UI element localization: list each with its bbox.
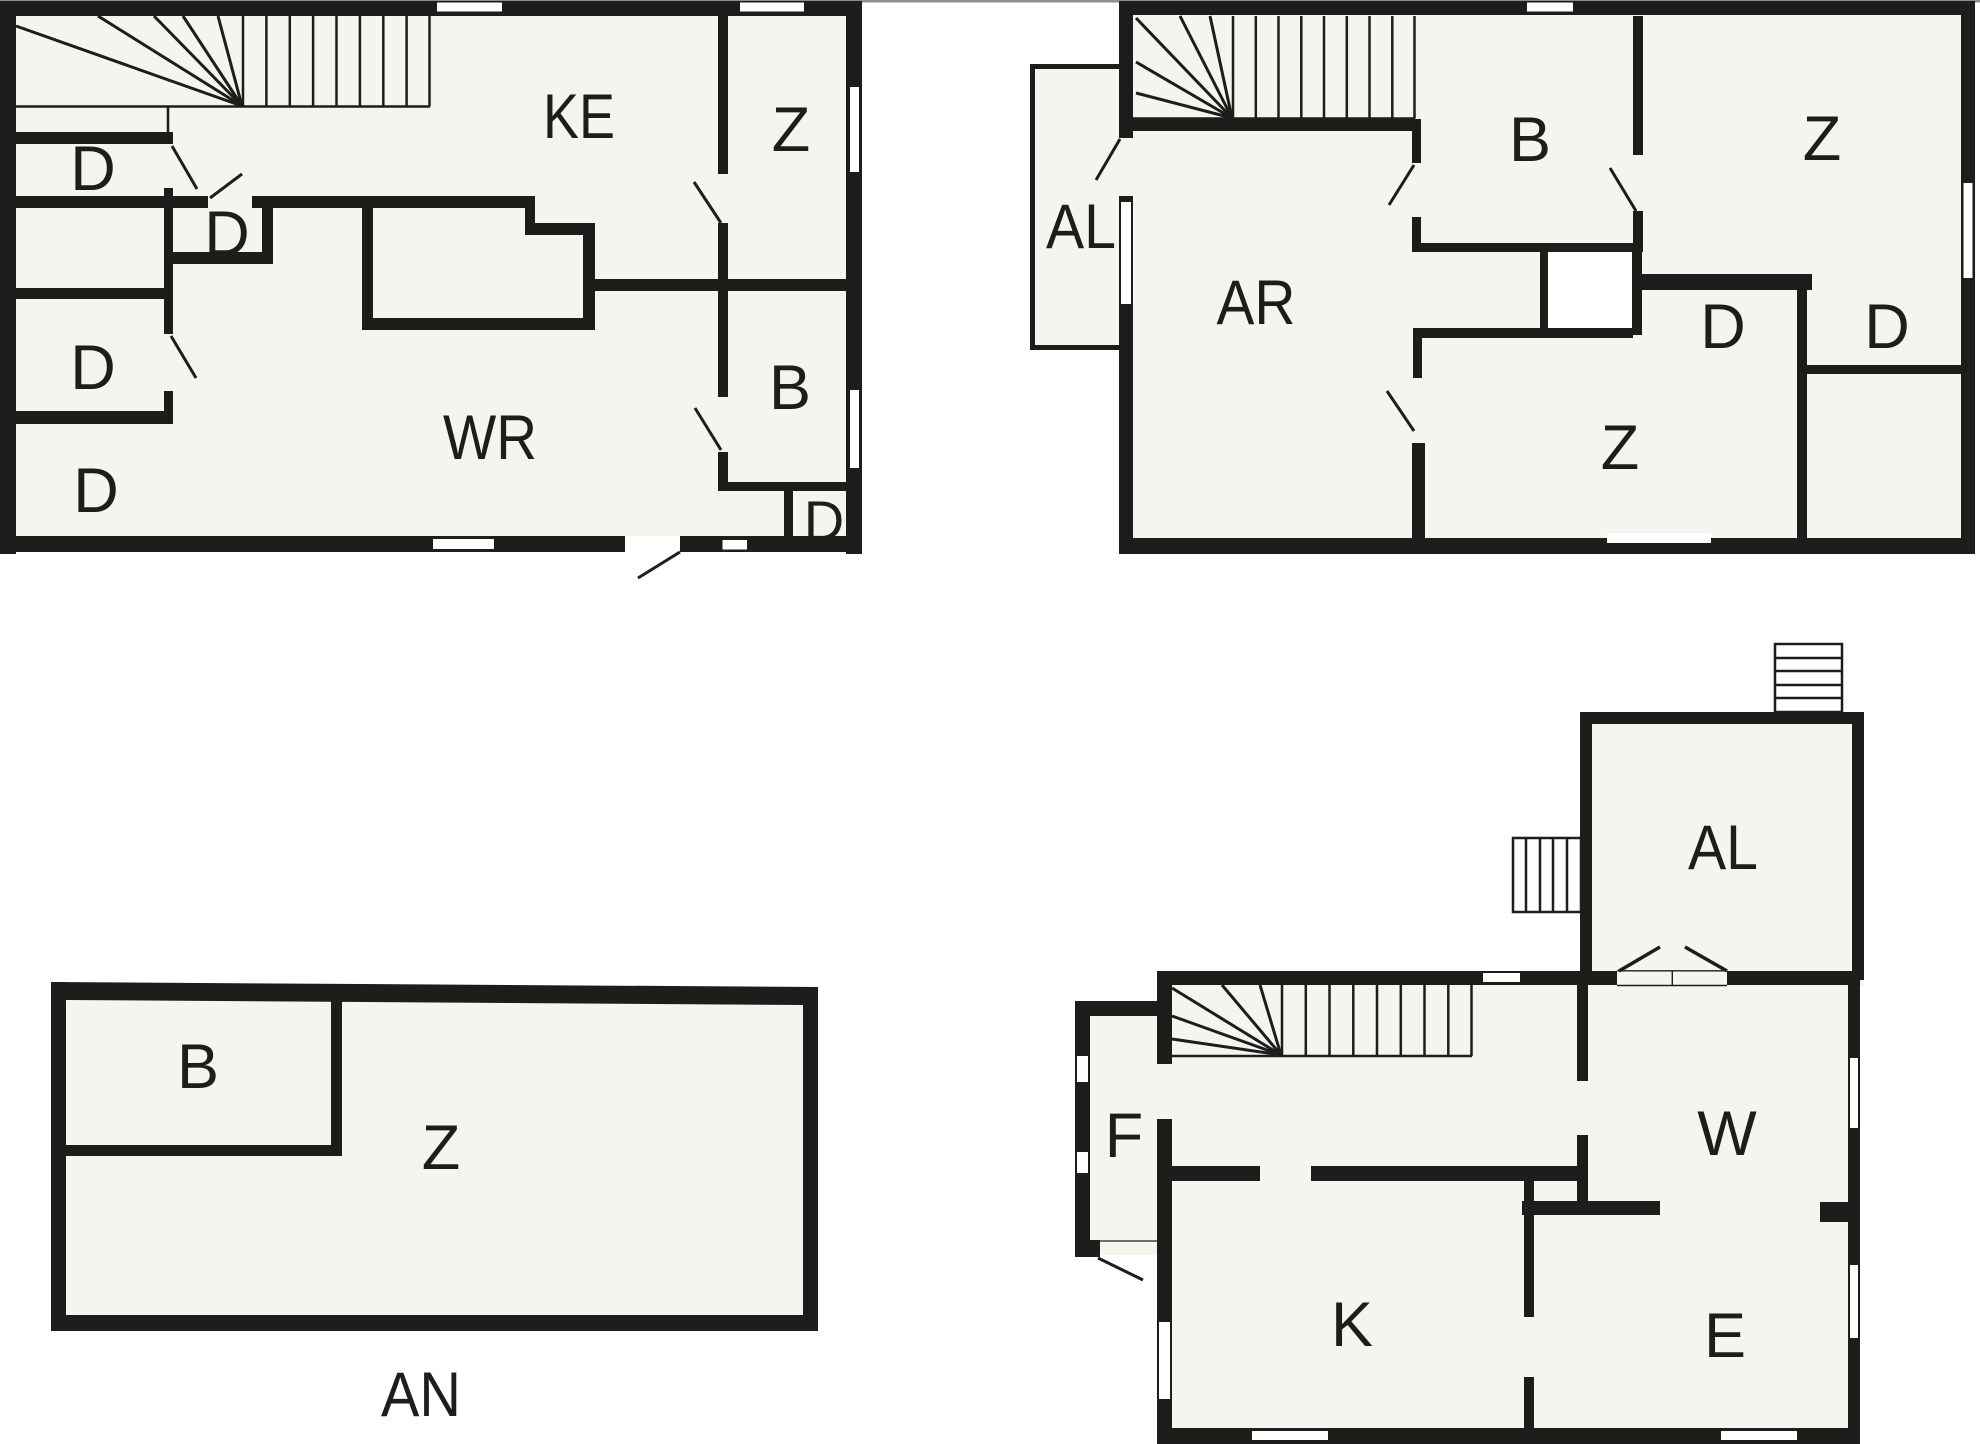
svg-text:D: D	[1864, 292, 1910, 362]
svg-text:B: B	[177, 1032, 219, 1102]
svg-text:W: W	[1697, 1099, 1757, 1169]
svg-text:KE: KE	[543, 82, 615, 152]
svg-text:D: D	[204, 199, 250, 269]
svg-text:D: D	[70, 333, 116, 403]
svg-text:D: D	[70, 134, 116, 204]
svg-text:AL: AL	[1688, 813, 1758, 883]
svg-text:E: E	[1704, 1301, 1746, 1371]
svg-text:AL: AL	[1046, 192, 1116, 262]
svg-text:B: B	[1509, 105, 1551, 175]
svg-text:Z: Z	[1803, 104, 1841, 174]
svg-text:AN: AN	[381, 1360, 461, 1430]
svg-text:Z: Z	[422, 1113, 460, 1183]
svg-text:AR: AR	[1217, 268, 1296, 338]
svg-text:Z: Z	[772, 95, 810, 165]
svg-text:D: D	[804, 489, 844, 552]
svg-text:Z: Z	[1601, 413, 1639, 483]
svg-text:WR: WR	[443, 403, 537, 473]
svg-text:D: D	[1700, 292, 1746, 362]
svg-text:K: K	[1331, 1290, 1373, 1360]
svg-text:B: B	[769, 353, 811, 423]
svg-text:D: D	[73, 456, 119, 526]
svg-text:F: F	[1105, 1101, 1143, 1171]
